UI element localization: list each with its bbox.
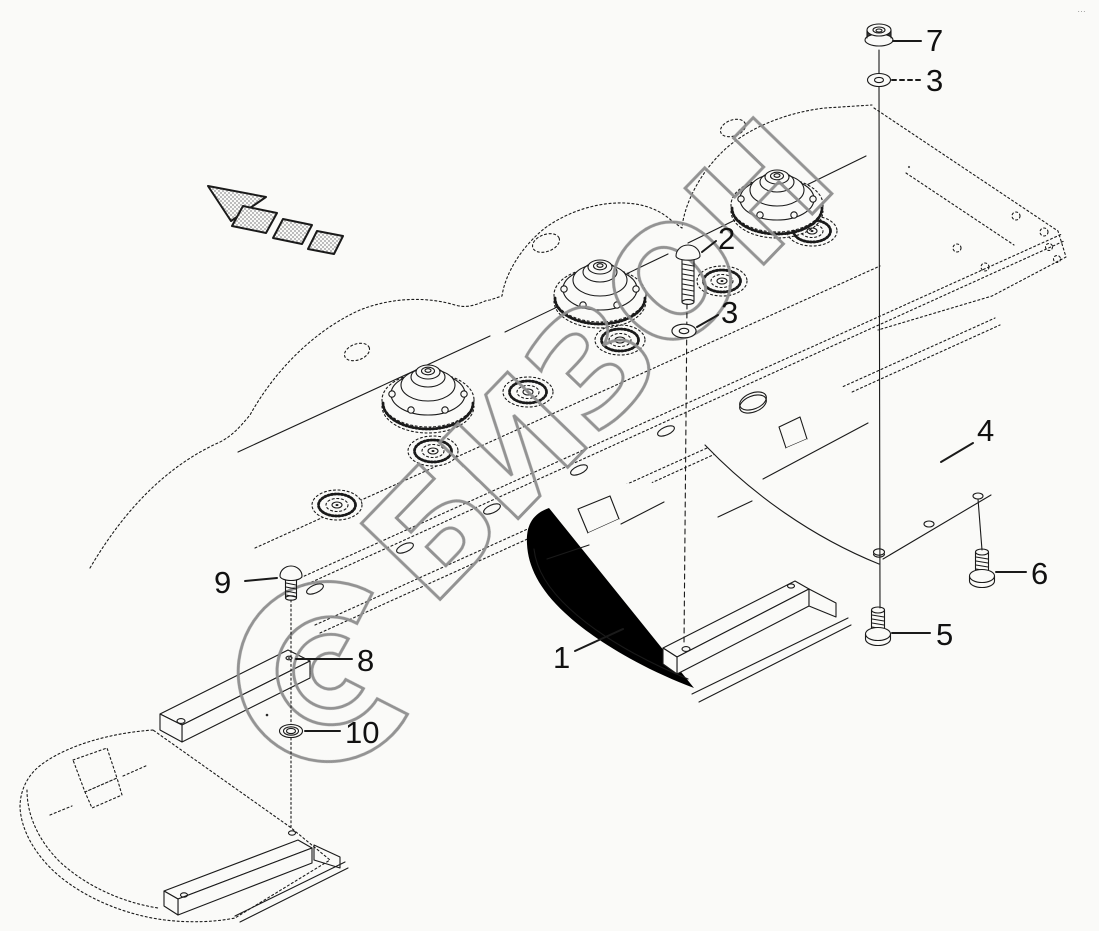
callout-label-5: 5 bbox=[936, 617, 953, 652]
callout-label-8: 8 bbox=[357, 643, 374, 678]
callout-label-4: 4 bbox=[977, 413, 994, 448]
callout-label-3-top: 3 bbox=[926, 63, 943, 98]
callout-label-9: 9 bbox=[214, 565, 231, 600]
leader-9 bbox=[245, 578, 277, 581]
exploded-parts-diagram: БИЗОН 7 3 bbox=[0, 0, 1099, 931]
parts-diagram-page: БИЗОН 7 3 bbox=[0, 0, 1099, 931]
speck bbox=[266, 714, 269, 717]
callout-label-2: 2 bbox=[718, 221, 735, 256]
callout-label-3-middle: 3 bbox=[721, 295, 738, 330]
callout-label-7: 7 bbox=[926, 23, 943, 58]
washer-3-middle bbox=[672, 324, 696, 338]
leader-4 bbox=[941, 443, 973, 462]
direction-arrow-icon bbox=[208, 186, 343, 254]
assembly-axis-screw6 bbox=[978, 499, 982, 550]
callout-label-6: 6 bbox=[1031, 556, 1048, 591]
callout-label-1: 1 bbox=[553, 640, 570, 675]
skid-plate-installed bbox=[20, 730, 348, 922]
washer-10 bbox=[280, 725, 303, 738]
flange-nut-7 bbox=[865, 24, 893, 46]
speck bbox=[908, 166, 910, 168]
end-frame-plate bbox=[874, 108, 1066, 330]
screw-5 bbox=[866, 607, 891, 646]
washer-3-top bbox=[868, 74, 891, 87]
callout-label-10: 10 bbox=[345, 715, 379, 750]
corner-print-mark: … bbox=[1077, 4, 1086, 14]
screw-6 bbox=[970, 549, 995, 588]
skid-plate-4 bbox=[705, 373, 997, 564]
